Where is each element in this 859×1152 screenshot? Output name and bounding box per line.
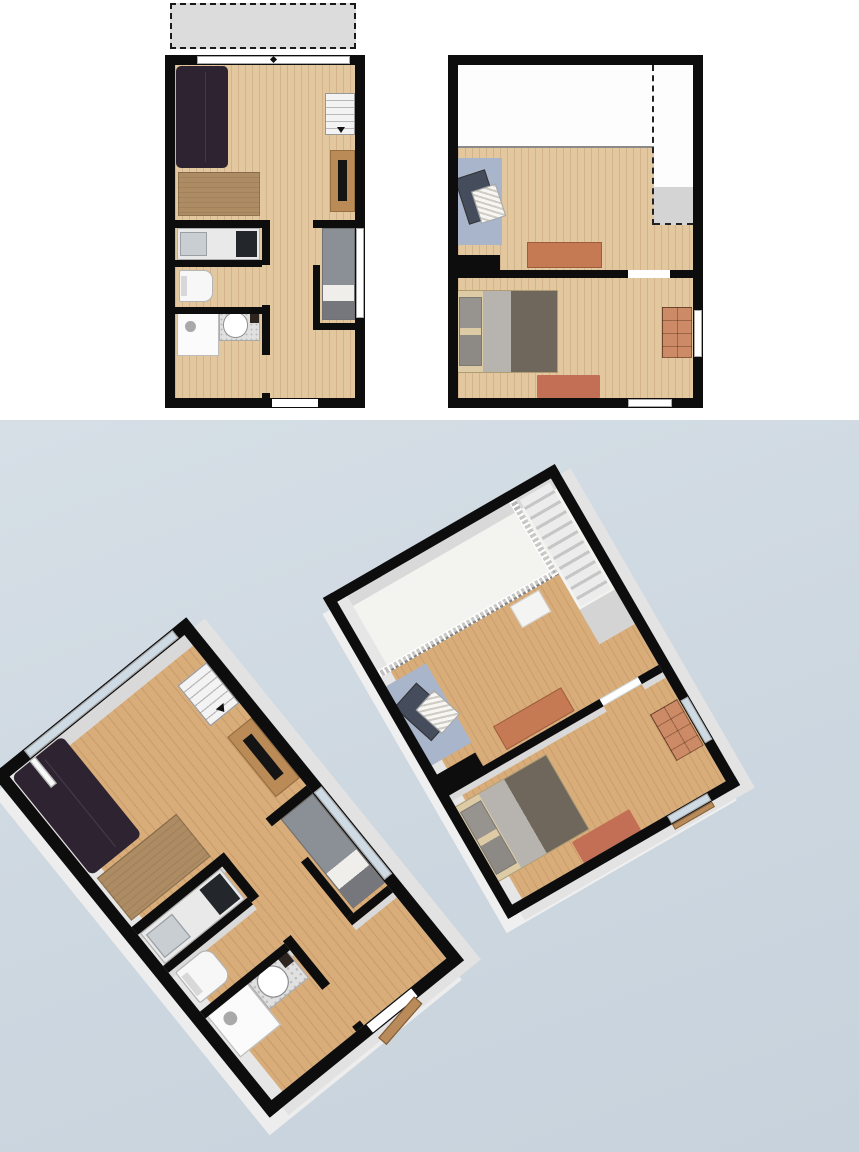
floor-void-open-below bbox=[458, 65, 654, 148]
void-edge-line bbox=[458, 146, 654, 148]
staircase[interactable] bbox=[325, 93, 355, 135]
sofa[interactable] bbox=[176, 66, 228, 168]
window-south-bedroom[interactable] bbox=[628, 399, 672, 407]
wall-corridor-3 bbox=[262, 393, 270, 398]
wall-south bbox=[165, 398, 365, 408]
terrace[interactable] bbox=[170, 3, 356, 49]
wall-west bbox=[448, 55, 458, 408]
wall-bedroom-bottom bbox=[313, 323, 355, 330]
wall-corridor-2 bbox=[262, 305, 270, 355]
toilet[interactable] bbox=[179, 270, 213, 302]
wall-chunk-west bbox=[450, 255, 500, 278]
floorplan-canvas[interactable] bbox=[0, 0, 859, 1152]
wall-room-divider-2 bbox=[670, 270, 693, 278]
floor-stairwell bbox=[654, 65, 693, 187]
entry-door[interactable] bbox=[272, 399, 318, 407]
stair-landing bbox=[654, 187, 693, 225]
tv-stand[interactable] bbox=[330, 150, 355, 212]
sideboard-console[interactable] bbox=[178, 172, 260, 216]
wall-corridor-1 bbox=[262, 220, 270, 265]
dresser[interactable] bbox=[662, 307, 692, 358]
floorplan-2d-ground-floor[interactable] bbox=[165, 55, 365, 408]
wall-kitchen-top bbox=[175, 220, 270, 228]
window-east-bedroom[interactable] bbox=[694, 310, 702, 357]
floor-stair-strip bbox=[654, 225, 693, 270]
wall-west bbox=[165, 55, 175, 408]
bedroom-door[interactable] bbox=[628, 271, 670, 277]
stairwell-dash-horizontal bbox=[654, 223, 693, 225]
floorplan-2d-upper-floor[interactable] bbox=[448, 55, 703, 408]
double-bed[interactable] bbox=[455, 290, 558, 373]
single-bed[interactable] bbox=[322, 228, 355, 320]
wall-bedroom-west bbox=[313, 265, 320, 323]
shower[interactable] bbox=[177, 312, 219, 356]
bedroom-rug[interactable] bbox=[537, 375, 600, 398]
desk[interactable] bbox=[527, 242, 602, 268]
wall-wc-bath bbox=[175, 307, 262, 314]
stairwell-dash-vertical bbox=[652, 65, 654, 225]
wall-kitchen-wc bbox=[175, 260, 262, 267]
wall-north bbox=[448, 55, 703, 65]
window-east-bedroom[interactable] bbox=[356, 228, 364, 318]
kitchen-counter[interactable] bbox=[177, 228, 260, 260]
wall-bedroom-top bbox=[313, 220, 355, 228]
